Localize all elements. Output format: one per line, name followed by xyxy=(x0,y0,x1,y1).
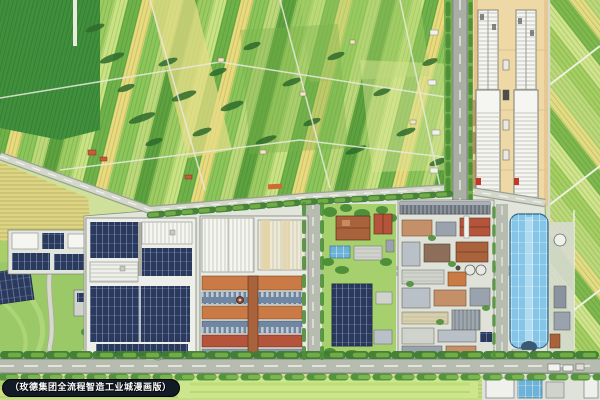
factory-zone-a xyxy=(86,218,196,358)
caption-label: （玫德集团全流程智造工业城漫画版） xyxy=(10,383,172,393)
road-trucks xyxy=(548,364,584,371)
caption-badge: （玫德集团全流程智造工业城漫画版） xyxy=(2,379,180,397)
left-fields-and-hill xyxy=(0,162,96,372)
storage-tank xyxy=(465,265,475,275)
factory-zone-c xyxy=(322,204,397,358)
factory-zone-b xyxy=(200,216,308,358)
factory-zone-d xyxy=(398,200,494,358)
storage-tank xyxy=(476,265,486,275)
aerial-industrial-city-illustration: （玫德集团全流程智造工业城漫画版） xyxy=(0,0,600,400)
scene xyxy=(0,0,600,400)
warehouse-2 xyxy=(514,10,538,210)
silo xyxy=(554,234,566,246)
factory-zone-e xyxy=(510,214,574,358)
